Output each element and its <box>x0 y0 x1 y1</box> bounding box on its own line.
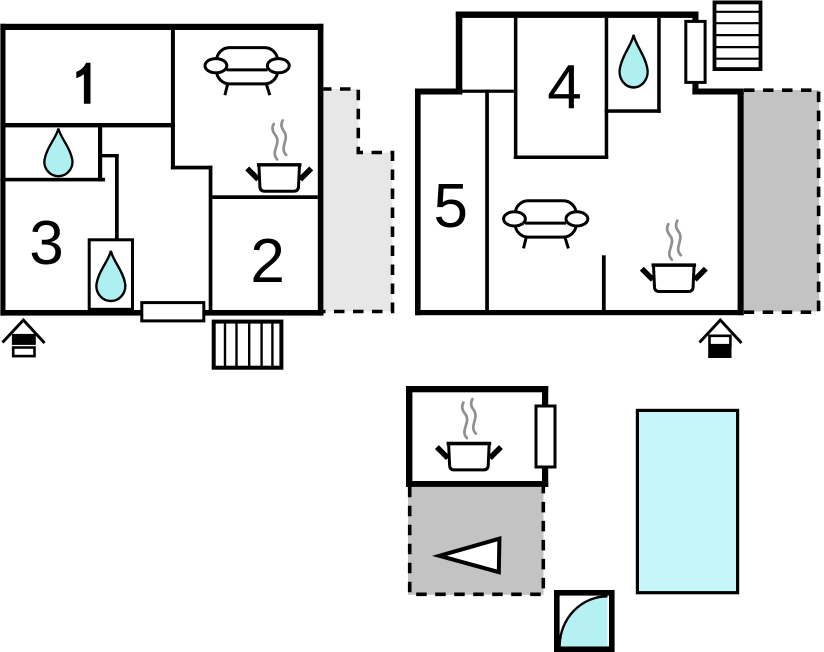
svg-text:4: 4 <box>547 53 581 122</box>
svg-text:3: 3 <box>29 209 63 278</box>
svg-text:2: 2 <box>250 227 284 296</box>
svg-text:5: 5 <box>433 172 467 241</box>
